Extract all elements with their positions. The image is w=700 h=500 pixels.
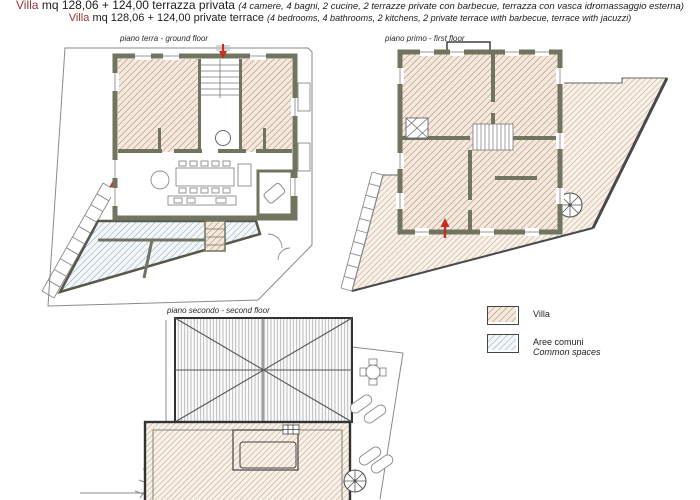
bedroom-top-left [118,59,198,128]
bathroom-right [258,171,292,215]
jacuzzi-steps [283,425,299,434]
outdoor-furniture [348,359,394,475]
void-hatch-box [406,118,428,138]
bedroom-top-right [242,59,292,128]
title-details-english: (4 bedrooms, 4 bathrooms, 2 kitchens, 2 … [267,13,631,23]
ground-floor-plan [40,38,320,310]
first-floor-plan [330,38,670,315]
legend-label-italian: Aree comuni [533,337,584,347]
shower-circle [216,131,231,146]
second-floor-plan [55,300,485,500]
legend-item-common-spaces: Aree comuni Common spaces [487,334,677,357]
roof [175,318,352,422]
title-details-italian: (4 camere, 4 bagni, 2 cucine, 2 terrazze… [238,1,684,12]
villa-hatch-swatch [487,306,519,325]
legend-item-villa: Villa [487,306,677,325]
title-line-italian: Villa mq 128,06 + 124,00 terrazza privat… [0,0,700,12]
fridge [238,164,251,186]
basement-stair [205,221,225,251]
legend-label-english: Common spaces [533,347,601,357]
dining-table [176,168,234,186]
legend-label: Villa [533,306,550,319]
legend: Villa Aree comuni Common spaces [487,306,677,366]
title-main-english: mq 128,06 + 124,00 private terrace [92,12,264,24]
roof-terrace [145,422,350,500]
bathroom-band-right [242,128,292,152]
villa-brand-text: Villa [16,0,38,12]
legend-label: Aree comuni Common spaces [533,334,601,357]
round-table [151,171,169,189]
common-terrace [60,221,260,292]
patio-table [366,365,380,379]
staircase [473,124,513,150]
villa-brand-text: Villa [69,12,90,24]
title-main-italian: mq 128,06 + 124,00 terrazza privata [42,0,235,12]
common-spaces-hatch-swatch [487,334,519,353]
staircase [201,59,239,128]
spiral-staircase [344,470,366,492]
title-line-english: Villa mq 128,06 + 124,00 private terrace… [0,12,700,24]
villa-building [111,52,299,218]
villa-building [396,42,564,236]
